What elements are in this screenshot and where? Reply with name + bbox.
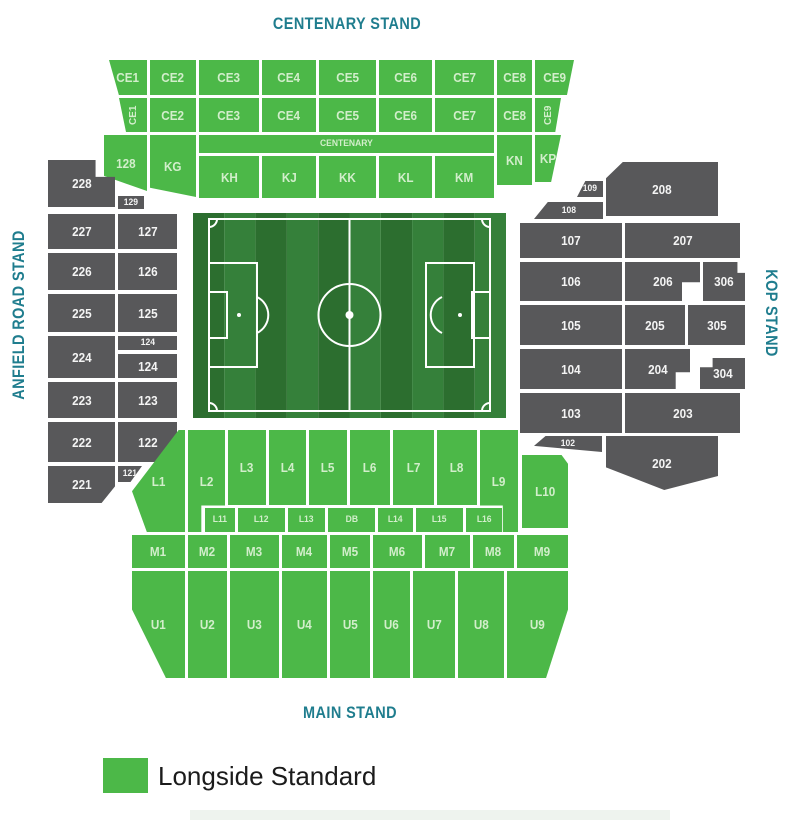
section-label: 221 <box>72 478 92 491</box>
section-label: 103 <box>561 407 581 420</box>
section-label: CE9 <box>543 105 554 124</box>
section-label: KK <box>339 171 356 184</box>
section-label: CE4 <box>278 109 301 122</box>
section-kh[interactable]: KH <box>199 156 259 198</box>
section-label: CE6 <box>394 71 417 84</box>
section-ce5[interactable]: CE5 <box>319 98 376 132</box>
section-108: 108 <box>534 202 603 219</box>
section-124: 124 <box>118 354 177 378</box>
section-label: CE5 <box>336 71 359 84</box>
section-227: 227 <box>48 214 115 249</box>
section-label: KM <box>455 171 473 184</box>
section-label: L2 <box>200 475 214 488</box>
section-103: 103 <box>520 393 622 433</box>
section-m8[interactable]: M8 <box>473 535 514 568</box>
section-ce7[interactable]: CE7 <box>435 98 494 132</box>
section-ce6[interactable]: CE6 <box>379 98 432 132</box>
section-label: KJ <box>282 171 297 184</box>
section-label: L4 <box>281 461 295 474</box>
section-label: U8 <box>474 618 489 631</box>
section-m9[interactable]: M9 <box>517 535 568 568</box>
section-label: L5 <box>321 461 335 474</box>
section-u3[interactable]: U3 <box>230 571 279 678</box>
section-label: M7 <box>439 545 455 558</box>
section-ce4[interactable]: CE4 <box>262 98 316 132</box>
cropped-legend-row <box>190 810 670 820</box>
section-label: 202 <box>652 457 672 470</box>
section-label: 222 <box>72 436 92 449</box>
section-label: 207 <box>673 234 693 247</box>
section-u7[interactable]: U7 <box>413 571 455 678</box>
section-l6[interactable]: L6 <box>350 430 390 505</box>
section-label: U9 <box>530 618 545 631</box>
section-205: 205 <box>625 305 685 345</box>
section-102: 102 <box>534 436 602 452</box>
section-label: 227 <box>72 225 92 238</box>
section-104: 104 <box>520 349 622 389</box>
section-ce8[interactable]: CE8 <box>497 60 532 95</box>
section-ce1[interactable]: CE1 <box>109 60 147 95</box>
section-ce3[interactable]: CE3 <box>199 60 259 95</box>
section-label: 224 <box>72 351 92 364</box>
section-kk[interactable]: KK <box>319 156 376 198</box>
section-l16[interactable]: L16 <box>466 508 502 532</box>
section-label: L1 <box>152 475 166 488</box>
section-kp[interactable]: KP <box>535 135 561 182</box>
section-label: L10 <box>535 485 555 498</box>
section-label: CENTENARY <box>320 139 373 149</box>
section-225: 225 <box>48 294 115 332</box>
pitch-graphic <box>193 213 506 418</box>
section-label: 126 <box>138 265 158 278</box>
section-label: M2 <box>199 545 215 558</box>
centenary-stand-title: CENTENARY STAND <box>273 14 421 34</box>
section-label: 306 <box>714 275 734 288</box>
section-label: 107 <box>561 234 581 247</box>
section-207: 207 <box>625 223 740 258</box>
section-label: KG <box>164 160 182 173</box>
section-kg[interactable]: KG <box>150 135 196 197</box>
section-label: KN <box>506 154 523 167</box>
section-105: 105 <box>520 305 622 345</box>
section-label: 105 <box>561 319 581 332</box>
section-l8[interactable]: L8 <box>437 430 477 505</box>
legend-swatch-longside-standard <box>103 758 148 793</box>
section-db[interactable]: DB <box>328 508 375 532</box>
section-label: 104 <box>561 363 581 376</box>
section-label: 108 <box>561 206 575 216</box>
section-ce9[interactable]: CE9 <box>535 98 561 132</box>
section-126: 126 <box>118 253 177 290</box>
section-label: M4 <box>296 545 312 558</box>
section-label: 122 <box>138 436 158 449</box>
section-121: 121 <box>118 466 142 482</box>
section-l5[interactable]: L5 <box>309 430 347 505</box>
section-222: 222 <box>48 422 115 462</box>
section-206: 206 <box>625 262 700 301</box>
section-label: 109 <box>583 184 597 194</box>
section-label: CE7 <box>453 71 476 84</box>
section-label: CE3 <box>218 109 241 122</box>
section-u5[interactable]: U5 <box>330 571 370 678</box>
section-km[interactable]: KM <box>435 156 494 198</box>
section-u8[interactable]: U8 <box>458 571 504 678</box>
section-ce6[interactable]: CE6 <box>379 60 432 95</box>
section-ce8[interactable]: CE8 <box>497 98 532 132</box>
section-ce2[interactable]: CE2 <box>150 98 196 132</box>
section-label: L8 <box>450 461 464 474</box>
section-label: 204 <box>648 363 668 376</box>
section-label: 228 <box>72 177 92 190</box>
section-109: 109 <box>577 181 603 197</box>
section-label: U2 <box>200 618 215 631</box>
section-l14[interactable]: L14 <box>378 508 413 532</box>
section-ce5[interactable]: CE5 <box>319 60 376 95</box>
section-label: L13 <box>299 515 314 525</box>
section-306: 306 <box>703 262 745 301</box>
section-label: M9 <box>534 545 550 558</box>
section-u1[interactable]: U1 <box>132 571 185 678</box>
section-305: 305 <box>688 305 745 345</box>
section-label: 305 <box>707 319 727 332</box>
section-ce7[interactable]: CE7 <box>435 60 494 95</box>
section-label: CE9 <box>543 71 566 84</box>
section-label: 226 <box>72 265 92 278</box>
section-label: L12 <box>254 515 269 525</box>
section-label: CE4 <box>278 71 301 84</box>
section-m6[interactable]: M6 <box>373 535 422 568</box>
section-label: U3 <box>247 618 262 631</box>
section-l11[interactable]: L11 <box>205 508 235 532</box>
section-124: 124 <box>118 336 177 350</box>
section-129: 129 <box>118 196 144 209</box>
section-label: 123 <box>138 394 158 407</box>
section-label: CE5 <box>336 109 359 122</box>
section-label: M6 <box>389 545 405 558</box>
section-ce4[interactable]: CE4 <box>262 60 316 95</box>
section-label: 124 <box>138 360 158 373</box>
section-label: 125 <box>138 307 158 320</box>
section-m2[interactable]: M2 <box>188 535 227 568</box>
section-label: 203 <box>673 407 693 420</box>
section-label: L14 <box>388 515 403 525</box>
section-kn[interactable]: KN <box>497 135 532 185</box>
kop-stand-title: KOP STAND <box>761 269 781 357</box>
section-kj[interactable]: KJ <box>262 156 316 198</box>
section-label: CE2 <box>162 109 185 122</box>
section-106: 106 <box>520 262 622 301</box>
section-label: L6 <box>363 461 377 474</box>
section-202: 202 <box>606 436 718 490</box>
section-label: CE3 <box>218 71 241 84</box>
section-label: CE7 <box>453 109 476 122</box>
section-l3[interactable]: L3 <box>228 430 266 505</box>
section-223: 223 <box>48 382 115 418</box>
section-208: 208 <box>606 162 718 216</box>
section-label: M5 <box>342 545 358 558</box>
section-label: 106 <box>561 275 581 288</box>
section-label: KH <box>221 171 238 184</box>
section-label: U4 <box>297 618 312 631</box>
section-kl[interactable]: KL <box>379 156 432 198</box>
section-125: 125 <box>118 294 177 332</box>
section-ce9[interactable]: CE9 <box>535 60 574 95</box>
section-label: U6 <box>384 618 399 631</box>
section-m7[interactable]: M7 <box>425 535 470 568</box>
section-label: L16 <box>477 515 492 525</box>
section-label: 124 <box>140 338 154 348</box>
section-127: 127 <box>118 214 177 249</box>
section-label: CE8 <box>503 109 526 122</box>
section-label: 128 <box>116 157 136 170</box>
section-centenary[interactable]: CENTENARY <box>199 135 494 153</box>
section-label: CE8 <box>503 71 526 84</box>
section-204: 204 <box>625 349 690 389</box>
section-u6[interactable]: U6 <box>373 571 410 678</box>
section-l12[interactable]: L12 <box>238 508 285 532</box>
section-226: 226 <box>48 253 115 290</box>
section-label: 208 <box>652 183 672 196</box>
section-label: L3 <box>240 461 254 474</box>
section-l15[interactable]: L15 <box>416 508 463 532</box>
section-label: U7 <box>427 618 442 631</box>
section-203: 203 <box>625 393 740 433</box>
section-label: M3 <box>246 545 262 558</box>
section-label: 304 <box>713 367 733 380</box>
section-label: 121 <box>123 469 137 479</box>
section-ce2[interactable]: CE2 <box>150 60 196 95</box>
section-label: L11 <box>213 515 227 525</box>
section-label: U1 <box>151 618 166 631</box>
section-label: DB <box>345 515 357 525</box>
section-ce1[interactable]: CE1 <box>119 98 147 132</box>
section-u9[interactable]: U9 <box>507 571 568 678</box>
section-label: U5 <box>343 618 358 631</box>
section-m3[interactable]: M3 <box>230 535 279 568</box>
section-label: 129 <box>124 198 138 208</box>
section-label: 223 <box>72 394 92 407</box>
stadium-seat-map: CENTENARY STAND ANFIELD ROAD STAND KOP S… <box>0 0 799 822</box>
section-l13[interactable]: L13 <box>288 508 325 532</box>
section-224: 224 <box>48 336 115 378</box>
section-m1[interactable]: M1 <box>132 535 185 568</box>
section-label: 206 <box>653 275 673 288</box>
section-221: 221 <box>48 466 115 503</box>
section-m4[interactable]: M4 <box>282 535 327 568</box>
section-u4[interactable]: U4 <box>282 571 327 678</box>
section-label: M8 <box>485 545 501 558</box>
section-l10[interactable]: L10 <box>522 455 568 528</box>
section-l4[interactable]: L4 <box>269 430 306 505</box>
section-label: 205 <box>645 319 665 332</box>
section-label: KL <box>398 171 414 184</box>
section-l7[interactable]: L7 <box>393 430 434 505</box>
legend-label-longside-standard: Longside Standard <box>158 758 376 793</box>
section-107: 107 <box>520 223 622 258</box>
section-ce3[interactable]: CE3 <box>199 98 259 132</box>
section-label: CE2 <box>162 71 185 84</box>
section-label: 225 <box>72 307 92 320</box>
section-m5[interactable]: M5 <box>330 535 370 568</box>
section-label: CE6 <box>394 109 417 122</box>
section-123: 123 <box>118 382 177 418</box>
section-label: CE1 <box>128 105 139 124</box>
section-label: 127 <box>138 225 158 238</box>
section-304: 304 <box>700 358 745 389</box>
section-label: L9 <box>492 475 506 488</box>
section-u2[interactable]: U2 <box>188 571 227 678</box>
section-label: L7 <box>407 461 421 474</box>
section-label: M1 <box>150 545 166 558</box>
main-stand-title: MAIN STAND <box>303 703 397 723</box>
anfield-road-stand-title: ANFIELD ROAD STAND <box>9 230 29 400</box>
section-label: KP <box>540 152 556 165</box>
section-label: L15 <box>432 515 447 525</box>
section-label: CE1 <box>117 71 140 84</box>
section-label: 102 <box>561 439 575 449</box>
